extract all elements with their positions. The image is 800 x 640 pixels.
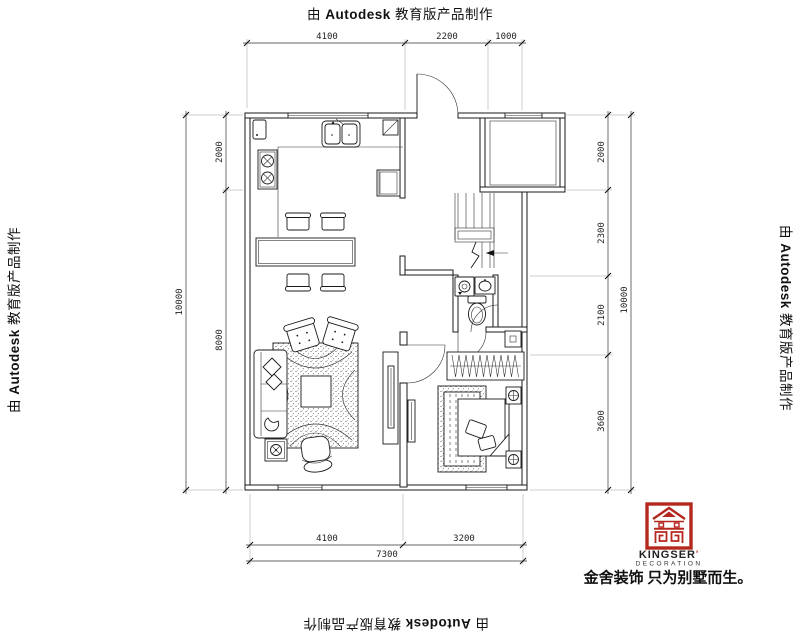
sofa <box>254 350 287 438</box>
dim-left-1: 2000 <box>215 141 225 163</box>
stairs <box>455 193 508 268</box>
dim-right-total: 10000 <box>620 286 630 313</box>
corner-shelf <box>383 120 398 135</box>
dim-right-2: 2300 <box>597 222 607 244</box>
logo-tagline: 金舍装饰 只为别墅而生。 <box>584 567 753 588</box>
bedroom-door <box>407 345 445 383</box>
dim-top-2: 2200 <box>436 32 458 42</box>
tv-cabinet <box>383 352 398 444</box>
bathroom-toilet <box>468 296 486 325</box>
logo-apostrophe: ' <box>696 549 699 559</box>
shaft-room <box>490 121 556 185</box>
dining-chair <box>321 274 346 291</box>
living-room <box>254 316 398 474</box>
nightstand <box>506 451 521 468</box>
nightstand <box>506 387 521 404</box>
dim-left-total: 10000 <box>175 288 185 315</box>
stove <box>258 150 277 189</box>
dim-right-4: 3600 <box>597 410 607 432</box>
kingser-logo <box>645 502 693 550</box>
dining-set <box>256 213 355 291</box>
kingser-logo-icon <box>645 502 693 550</box>
dining-chair <box>321 213 346 230</box>
bathroom-vanity <box>475 277 495 294</box>
water-heater <box>253 120 266 139</box>
kitchen-sink <box>322 119 360 147</box>
dining-chair <box>286 213 311 230</box>
bedroom-dresser <box>408 400 415 442</box>
bedroom <box>407 345 524 472</box>
coffee-table <box>301 376 331 407</box>
bathroom <box>455 277 521 360</box>
entry-door <box>417 74 458 115</box>
logo-brand: KINGSER <box>639 549 696 561</box>
dim-left-2: 8000 <box>215 329 225 351</box>
dim-right-3: 2100 <box>597 304 607 326</box>
dim-bottom-1: 4100 <box>316 534 338 544</box>
dim-bottom-total: 7300 <box>376 550 398 560</box>
dining-chair <box>286 274 311 291</box>
dim-right-1: 2000 <box>597 141 607 163</box>
dim-top-1: 4100 <box>316 32 338 42</box>
shower-fixture <box>505 331 521 347</box>
dining-table <box>256 238 355 266</box>
bedroom-bed <box>458 399 509 456</box>
dim-top-3: 1000 <box>495 32 517 42</box>
wardrobe <box>447 352 524 380</box>
dim-bottom-2: 3200 <box>453 534 475 544</box>
logo-brand-text: KINGSER' <box>639 549 699 561</box>
floor-lamp <box>265 439 287 461</box>
washing-machine <box>455 277 474 296</box>
floorplan-canvas: 由 Autodesk 教育版产品制作 由 Autodesk 教育版产品制作 由 … <box>0 0 800 640</box>
lounge-chair <box>299 435 334 474</box>
stair-break-line <box>471 242 479 268</box>
fridge <box>377 170 400 196</box>
